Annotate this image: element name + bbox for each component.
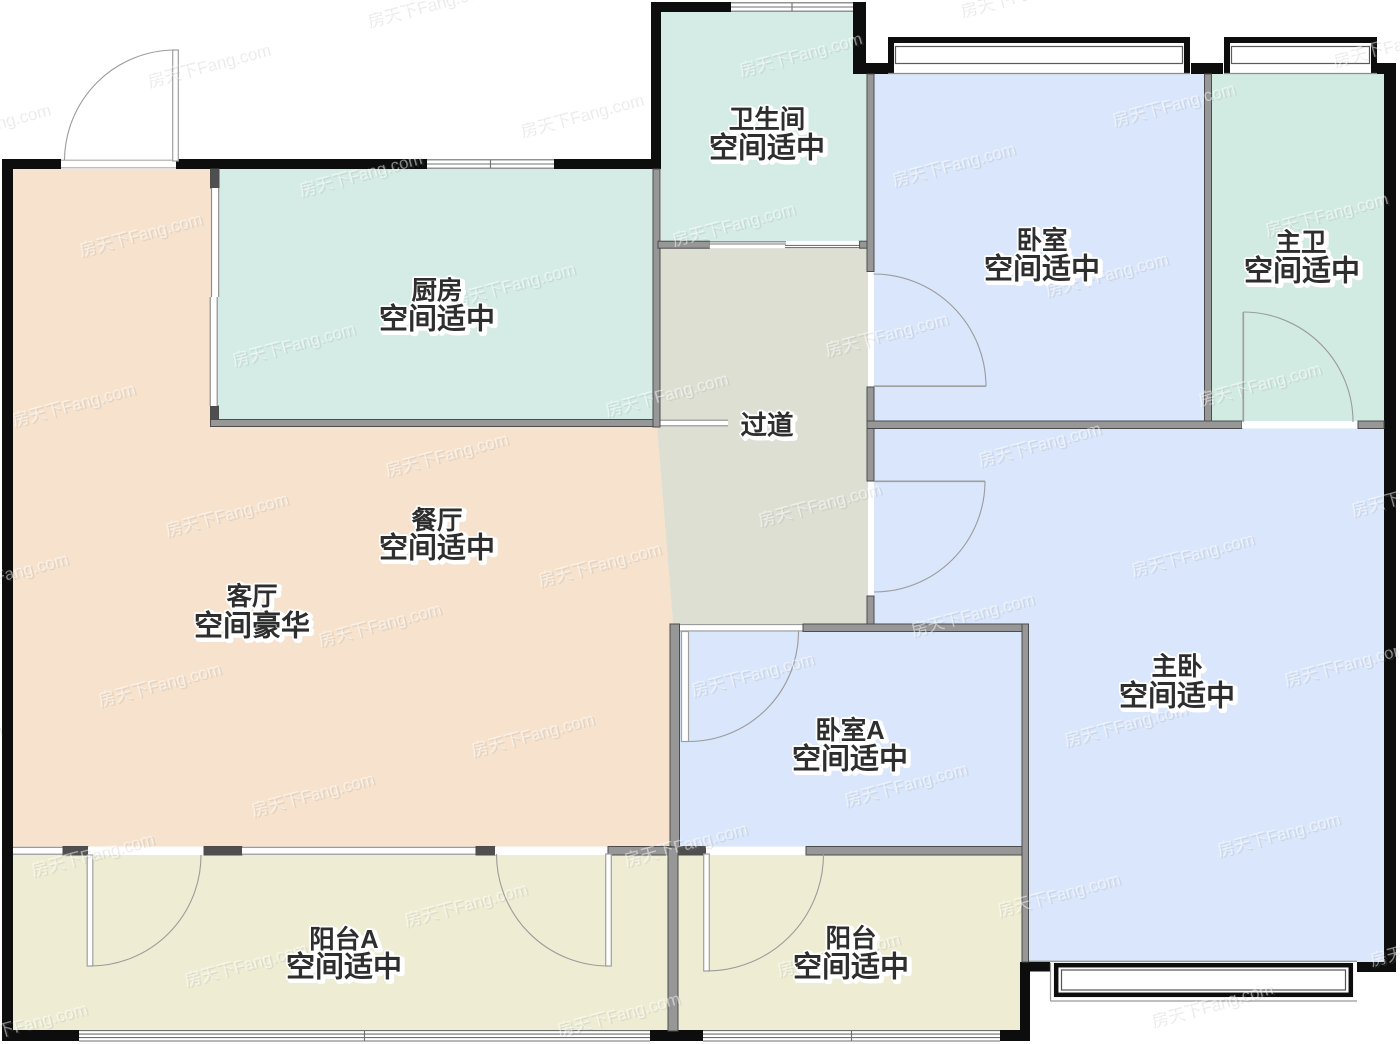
svg-text:客厅: 客厅 (226, 582, 277, 611)
svg-text:空间适中: 空间适中 (984, 251, 1100, 285)
svg-text:空间适中: 空间适中 (1244, 253, 1360, 287)
svg-text:卧室: 卧室 (1016, 226, 1067, 255)
svg-text:阳台: 阳台 (825, 924, 876, 953)
svg-text:空间适中: 空间适中 (379, 301, 495, 335)
svg-text:空间适中: 空间适中 (1119, 678, 1235, 712)
svg-text:空间适中: 空间适中 (286, 949, 402, 983)
svg-text:卫生间: 卫生间 (729, 106, 806, 134)
svg-text:厨房: 厨房 (411, 276, 462, 305)
svg-text:空间适中: 空间适中 (793, 949, 909, 983)
svg-text:主卫: 主卫 (1275, 229, 1326, 257)
svg-text:餐厅: 餐厅 (411, 507, 462, 535)
svg-text:主卧: 主卧 (1151, 653, 1203, 681)
svg-text:空间适中: 空间适中 (379, 530, 495, 564)
svg-text:空间豪华: 空间豪华 (194, 608, 310, 642)
svg-text:阳台A: 阳台A (309, 925, 378, 954)
svg-text:卧室A: 卧室A (815, 716, 884, 745)
svg-text:过道: 过道 (741, 411, 795, 441)
svg-text:空间适中: 空间适中 (709, 130, 825, 164)
svg-text:空间适中: 空间适中 (792, 741, 908, 775)
